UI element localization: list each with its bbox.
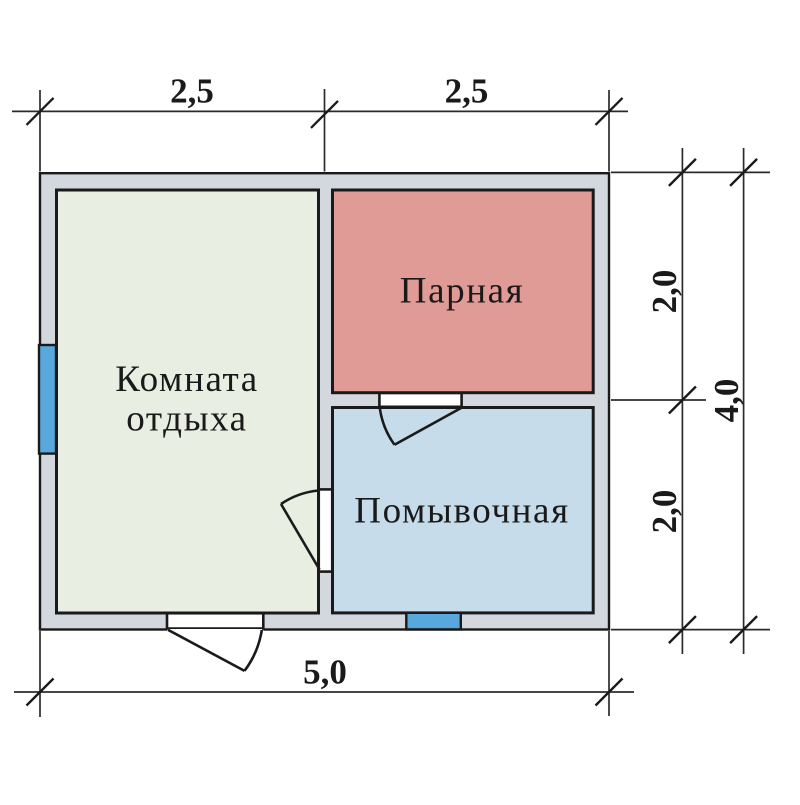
svg-text:Парная: Парная: [400, 271, 524, 312]
svg-text:4,0: 4,0: [707, 379, 746, 423]
svg-text:2,0: 2,0: [645, 490, 684, 534]
svg-text:2,5: 2,5: [170, 72, 214, 111]
svg-text:Помывочная: Помывочная: [354, 491, 569, 532]
svg-text:2,5: 2,5: [445, 72, 489, 111]
svg-text:2,0: 2,0: [645, 270, 684, 314]
svg-text:отдыха: отдыха: [126, 399, 247, 440]
svg-text:Комната: Комната: [115, 359, 259, 400]
svg-text:5,0: 5,0: [303, 653, 347, 692]
